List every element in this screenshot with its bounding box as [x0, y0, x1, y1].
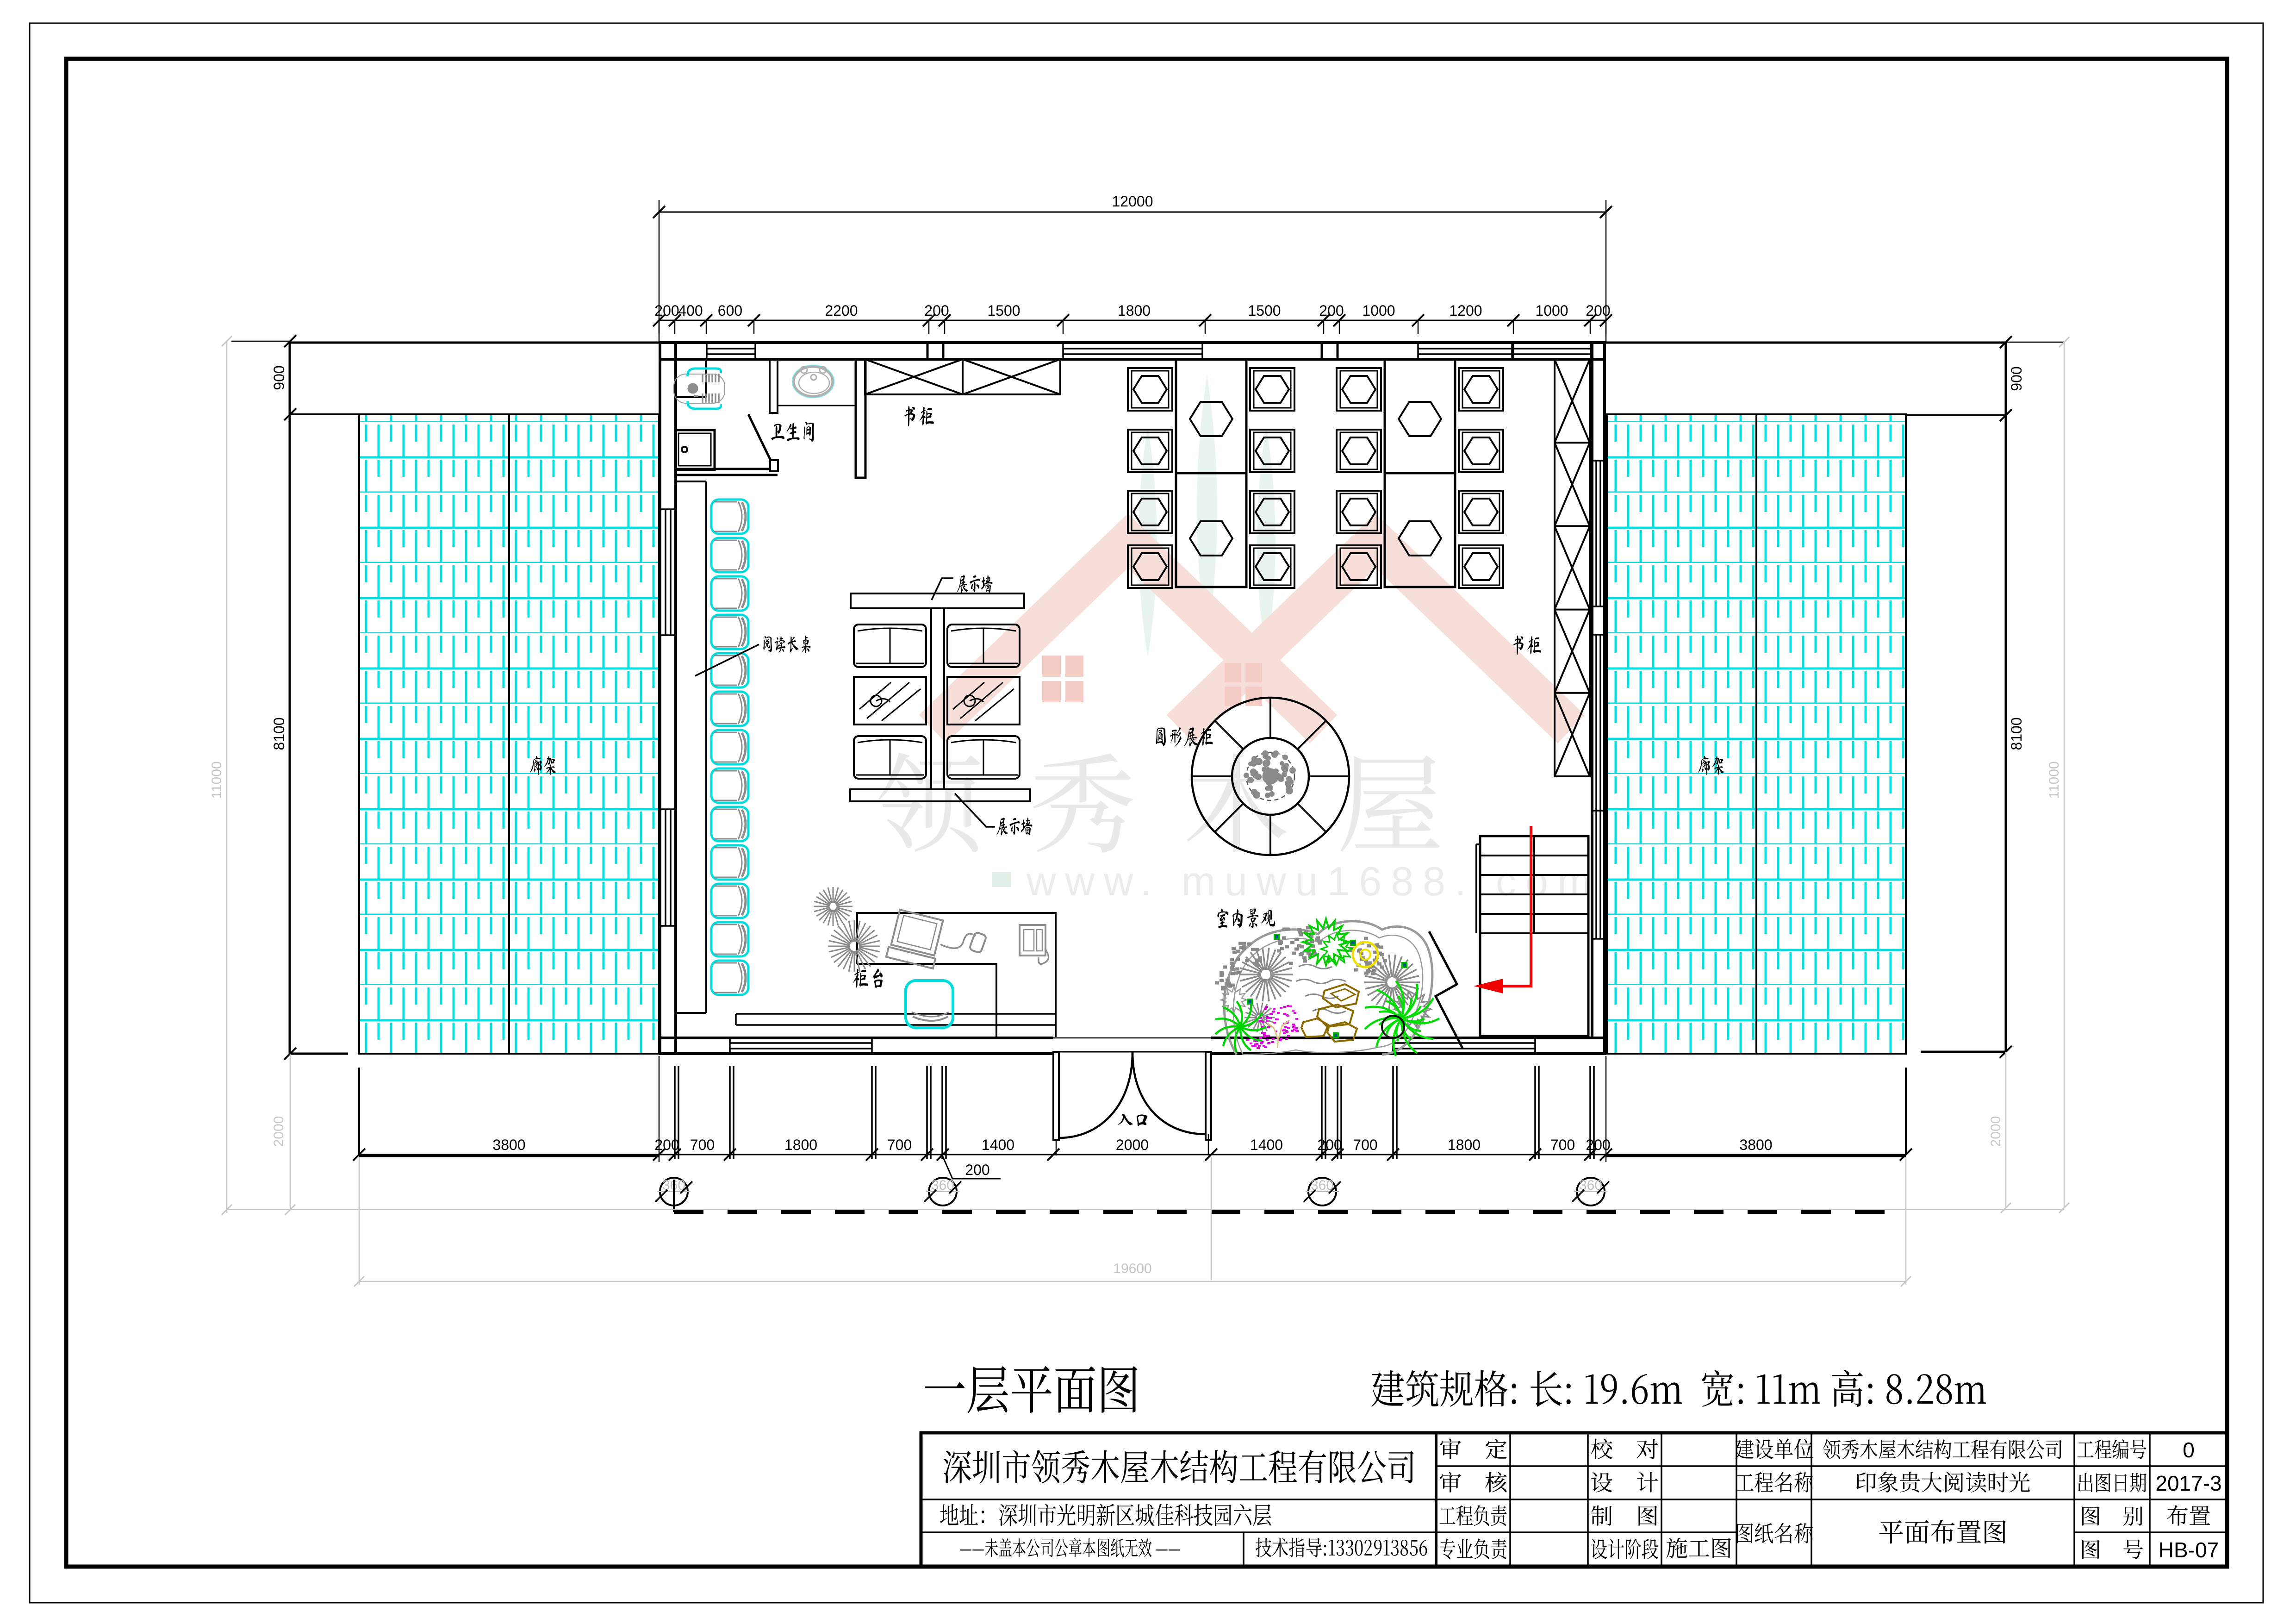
svg-text:600: 600	[718, 302, 742, 319]
svg-text:8100: 8100	[2008, 717, 2025, 750]
svg-text:12000: 12000	[1112, 193, 1153, 210]
svg-text:1800: 1800	[1448, 1137, 1481, 1153]
svg-text:1000: 1000	[1535, 302, 1568, 319]
svg-text:19600: 19600	[1113, 1261, 1151, 1276]
svg-text:200: 200	[1319, 302, 1344, 319]
svg-text:200: 200	[965, 1162, 989, 1178]
svg-text:1800: 1800	[784, 1137, 817, 1153]
svg-text:1500: 1500	[987, 302, 1020, 319]
svg-text:2017-3: 2017-3	[2155, 1471, 2221, 1495]
svg-text:1400: 1400	[982, 1137, 1014, 1153]
svg-text:1000: 1000	[1362, 302, 1395, 319]
svg-text:3800: 3800	[1739, 1137, 1772, 1153]
svg-text:3800: 3800	[492, 1137, 525, 1153]
svg-text:www. muwu1688. com: www. muwu1688. com	[1026, 858, 1600, 904]
svg-text:11000: 11000	[2047, 761, 2062, 799]
svg-text:700: 700	[690, 1137, 715, 1153]
svg-text:2000: 2000	[1988, 1116, 2004, 1147]
svg-text:900: 900	[271, 365, 287, 390]
svg-text:200: 200	[1317, 1137, 1342, 1153]
svg-text:700: 700	[887, 1137, 912, 1153]
svg-text:200: 200	[1586, 1137, 1610, 1153]
svg-text:700: 700	[1353, 1137, 1377, 1153]
svg-text:8100: 8100	[271, 717, 287, 750]
svg-text:2200: 2200	[825, 302, 858, 319]
svg-text:700: 700	[1550, 1137, 1575, 1153]
svg-text:900: 900	[2008, 366, 2025, 391]
svg-text:200: 200	[654, 302, 679, 319]
svg-text:200: 200	[1586, 302, 1610, 319]
svg-text:2000: 2000	[1116, 1137, 1149, 1153]
svg-text:0: 0	[2183, 1438, 2195, 1462]
svg-text:200: 200	[924, 302, 949, 319]
svg-text:2000: 2000	[271, 1116, 286, 1147]
svg-text:1200: 1200	[1449, 302, 1482, 319]
svg-text:200: 200	[654, 1137, 679, 1153]
svg-text:1400: 1400	[1250, 1137, 1283, 1153]
svg-text:HB-07: HB-07	[2159, 1538, 2219, 1562]
svg-text:1500: 1500	[1248, 302, 1281, 319]
svg-text:11000: 11000	[209, 761, 224, 799]
svg-text:400: 400	[678, 302, 703, 319]
svg-text:1800: 1800	[1118, 302, 1151, 319]
